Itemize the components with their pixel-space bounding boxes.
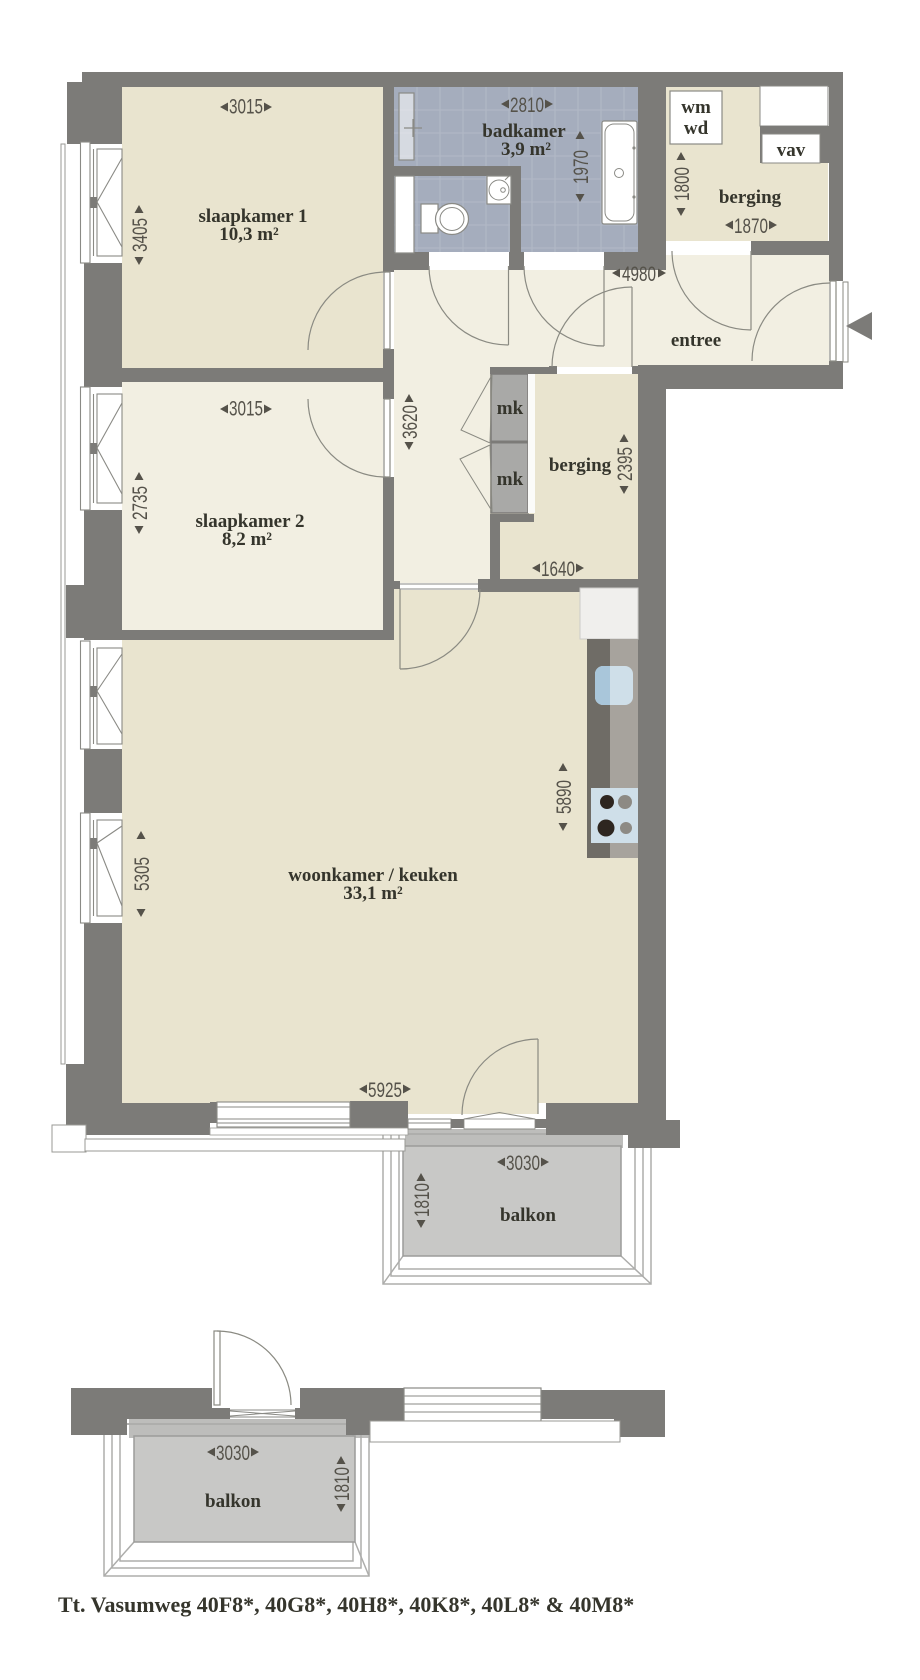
svg-text:balkon: balkon [205, 1491, 261, 1512]
svg-text:wm: wm [681, 97, 711, 118]
svg-text:1640: 1640 [541, 557, 575, 581]
svg-text:wd: wd [684, 118, 709, 139]
svg-text:3030: 3030 [506, 1151, 540, 1175]
svg-text:3,9 m²: 3,9 m² [501, 139, 551, 160]
svg-text:5890: 5890 [552, 780, 576, 814]
svg-text:entree: entree [671, 330, 721, 351]
svg-text:1800: 1800 [670, 167, 694, 201]
svg-text:33,1 m²: 33,1 m² [343, 883, 403, 904]
svg-text:3405: 3405 [128, 218, 152, 252]
svg-text:5305: 5305 [130, 857, 154, 891]
svg-text:mk: mk [497, 398, 524, 419]
svg-text:berging: berging [719, 187, 782, 208]
svg-text:1870: 1870 [734, 214, 768, 238]
svg-text:balkon: balkon [500, 1205, 556, 1226]
svg-text:3015: 3015 [229, 397, 263, 421]
svg-text:4980: 4980 [622, 262, 656, 286]
svg-text:8,2 m²: 8,2 m² [222, 529, 272, 550]
svg-text:10,3 m²: 10,3 m² [219, 224, 279, 245]
svg-text:5925: 5925 [368, 1078, 402, 1102]
svg-text:3030: 3030 [216, 1441, 250, 1465]
svg-text:vav: vav [777, 140, 806, 161]
svg-text:2395: 2395 [613, 447, 637, 481]
svg-text:2810: 2810 [510, 93, 544, 117]
svg-text:1970: 1970 [569, 150, 593, 184]
svg-text:3620: 3620 [398, 405, 422, 439]
svg-text:1810: 1810 [330, 1467, 354, 1501]
svg-text:3015: 3015 [229, 95, 263, 119]
svg-text:mk: mk [497, 469, 524, 490]
svg-text:1810: 1810 [410, 1183, 434, 1217]
svg-text:berging: berging [549, 455, 612, 476]
svg-text:2735: 2735 [128, 486, 152, 520]
svg-text:Tt. Vasumweg 40F8*, 40G8*, 40H: Tt. Vasumweg 40F8*, 40G8*, 40H8*, 40K8*,… [58, 1592, 634, 1617]
